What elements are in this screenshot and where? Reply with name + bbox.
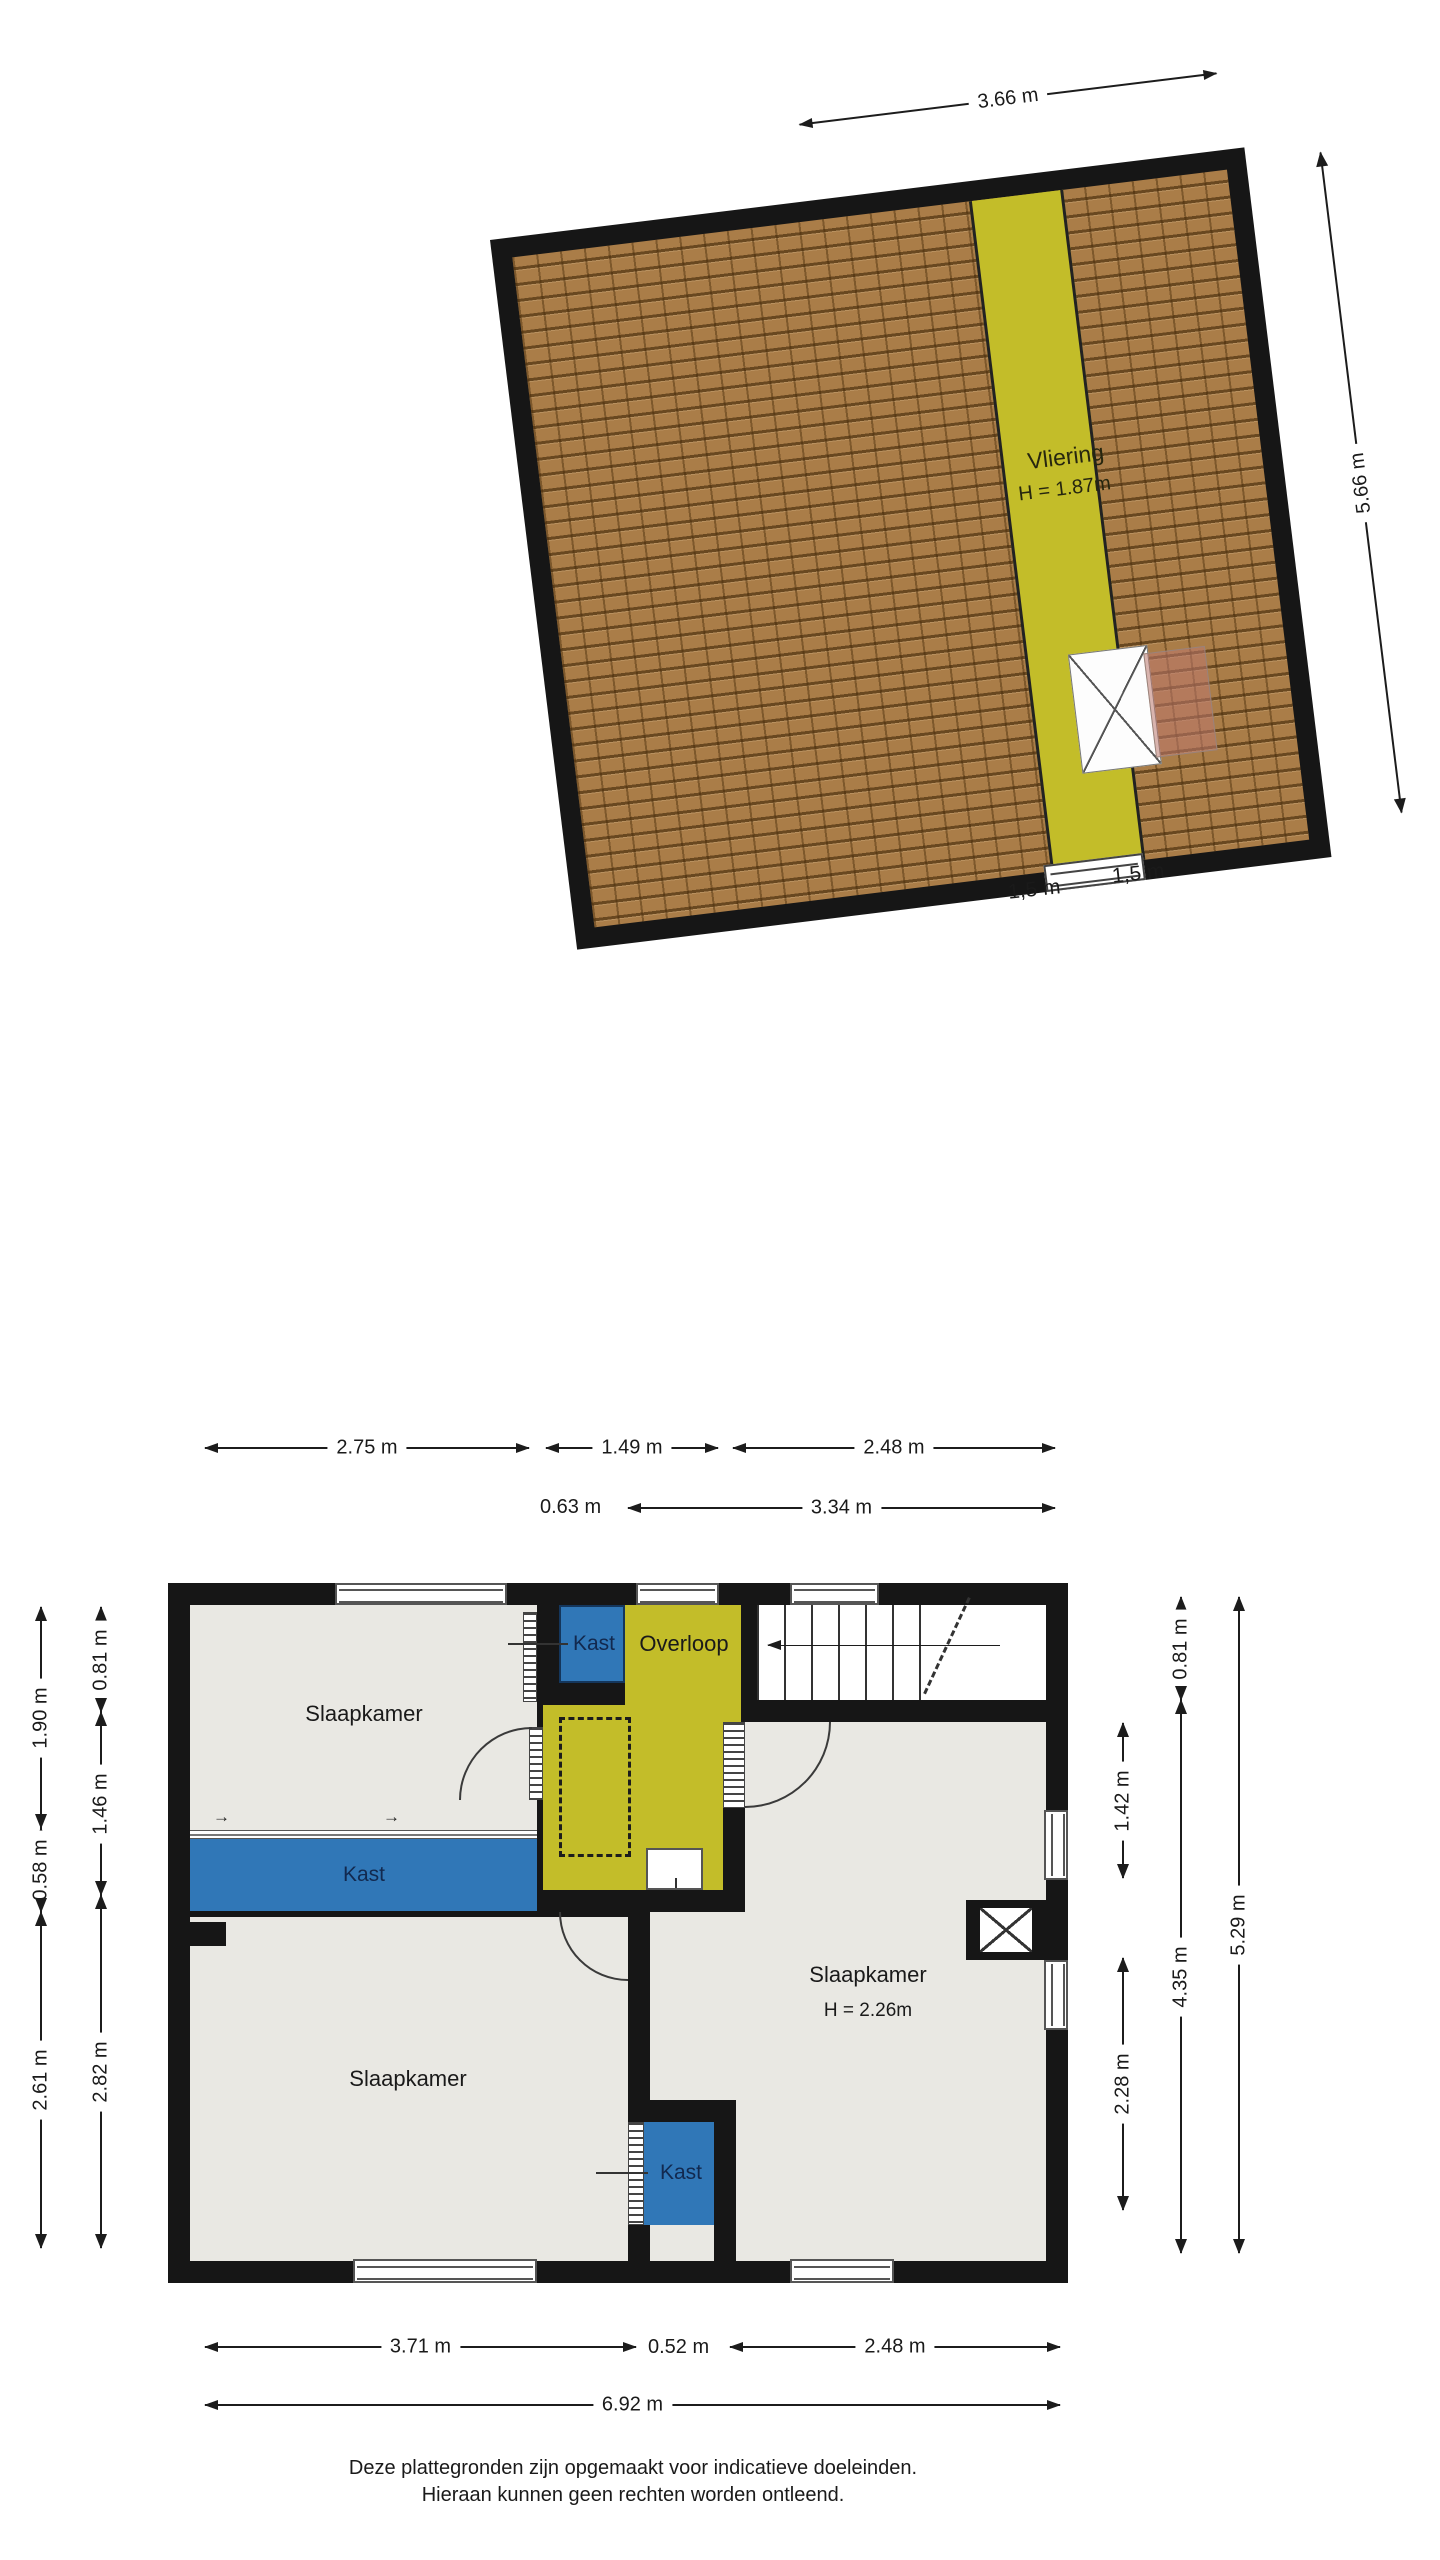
- window: [636, 1583, 719, 1605]
- door-jamb: [723, 1722, 745, 1808]
- wall-stub: [190, 1922, 226, 1946]
- dim-label: 3.34 m: [802, 1497, 881, 1520]
- dormer-overlay: [1143, 646, 1217, 758]
- window: [353, 2259, 537, 2283]
- dim-bottom: 3.71 m: [205, 2346, 636, 2348]
- wall: [628, 2100, 714, 2122]
- roof-body: Vliering H = 1.87m: [490, 147, 1331, 949]
- wall: [741, 1700, 1046, 1722]
- dim-top: 2.48 m: [733, 1447, 1055, 1449]
- dim-top: 3.34 m: [628, 1507, 1055, 1509]
- dim-label: 1.90 m: [29, 1678, 54, 1757]
- roof-dim-right: 5.66 m: [1319, 152, 1402, 812]
- shaft-x-symbol: [980, 1908, 1032, 1952]
- window: [1044, 1810, 1068, 1880]
- sliding-direction-arrow: →: [383, 1807, 400, 1827]
- dim-left: 0.58 m: [40, 1828, 42, 1912]
- dim-left: 0.81 m: [100, 1607, 102, 1712]
- dim-label: 3.66 m: [967, 83, 1048, 115]
- dim-label: 6.92 m: [593, 2394, 672, 2417]
- window: [1044, 1960, 1068, 2030]
- room-label-closet-strip: Kast: [343, 1863, 385, 1887]
- dim-label: 2.48 m: [855, 2336, 934, 2359]
- sink-symbol: [646, 1848, 703, 1890]
- room-label-closet-bottom: Kast: [660, 2161, 702, 2185]
- dim-top: 1.49 m: [546, 1447, 718, 1449]
- dim-right: 5.29 m: [1238, 1597, 1240, 2253]
- dim-bottom: 6.92 m: [205, 2404, 1060, 2406]
- wall: [723, 1808, 745, 1890]
- dim-bottom: 2.48 m: [730, 2346, 1060, 2348]
- disclaimer-line-2: Hieraan kunnen geen rechten worden ontle…: [168, 2482, 1098, 2509]
- dim-bottom: 0.52 m: [648, 2336, 709, 2359]
- dim-right: 1.42 m: [1122, 1723, 1124, 1878]
- dim-label: 5.66 m: [1344, 442, 1378, 524]
- room-label-bedroom-top-left: Slaapkamer: [305, 1701, 422, 1727]
- wall: [537, 1683, 625, 1705]
- dim-left: 2.61 m: [40, 1912, 42, 2248]
- floor-plan: → → Slaapkamer Kast Overloop Kast Slaapk…: [168, 1583, 1068, 2283]
- sliding-door-track: [190, 1830, 537, 1839]
- room-label-bedroom-right: Slaapkamer: [809, 1962, 926, 1988]
- dim-label: 4.35 m: [1169, 1937, 1194, 2016]
- window: [335, 1583, 507, 1605]
- dim-label: 2.48 m: [854, 1437, 933, 1460]
- stair-direction-arrow: [768, 1645, 1000, 1646]
- dim-label: 0.81 m: [89, 1620, 114, 1699]
- label-leader-line: [508, 1643, 568, 1645]
- roof-dim-bottom-left: 1,5 m: [1007, 875, 1062, 904]
- disclaimer-line-1: Deze plattegronden zijn opgemaakt voor i…: [168, 2455, 1098, 2482]
- roof-dim-bottom-right: 1,5 m: [1111, 859, 1166, 888]
- roof-dim-top: 3.66 m: [799, 72, 1216, 125]
- dim-label: 3.71 m: [381, 2336, 460, 2359]
- dim-label: 0.58 m: [29, 1830, 54, 1909]
- label-leader-line: [596, 2172, 648, 2174]
- room-label-landing: Overloop: [639, 1631, 728, 1657]
- dim-top: 0.63 m: [540, 1496, 601, 1519]
- dim-label: 2.61 m: [29, 2040, 54, 2119]
- glazed-panel: [523, 1612, 537, 1702]
- window: [790, 1583, 879, 1605]
- dim-label: 2.82 m: [89, 2032, 114, 2111]
- dim-label: 1.46 m: [89, 1764, 114, 1843]
- stair-treads: [757, 1605, 925, 1700]
- wall: [628, 1890, 650, 2122]
- sliding-direction-arrow: →: [213, 1807, 230, 1827]
- dim-label: 1.42 m: [1111, 1761, 1136, 1840]
- dim-left: 1.90 m: [40, 1607, 42, 1828]
- attic-hatch-dashed: [559, 1717, 631, 1857]
- dim-label: 2.28 m: [1111, 2044, 1136, 2123]
- dim-label: 0.81 m: [1169, 1609, 1194, 1688]
- roof-tiles: [512, 170, 1309, 928]
- dim-right: 0.81 m: [1180, 1597, 1182, 1700]
- dim-right: 2.28 m: [1122, 1958, 1124, 2210]
- room-label-closet-top: Kast: [573, 1632, 615, 1656]
- dim-label: 1.49 m: [592, 1437, 671, 1460]
- dim-left: 1.46 m: [100, 1712, 102, 1895]
- wall: [714, 2100, 736, 2261]
- wall: [543, 1890, 563, 1912]
- room-height-label-bedroom-right: H = 2.26m: [824, 2000, 912, 2022]
- dim-left: 2.82 m: [100, 1895, 102, 2248]
- window: [790, 2259, 894, 2283]
- room-label-bedroom-bottom-left: Slaapkamer: [349, 2066, 466, 2092]
- dim-top: 2.75 m: [205, 1447, 529, 1449]
- dim-label: 2.75 m: [327, 1437, 406, 1460]
- disclaimer: Deze plattegronden zijn opgemaakt voor i…: [168, 2455, 1098, 2509]
- dim-right: 4.35 m: [1180, 1700, 1182, 2253]
- dim-label: 5.29 m: [1227, 1885, 1252, 1964]
